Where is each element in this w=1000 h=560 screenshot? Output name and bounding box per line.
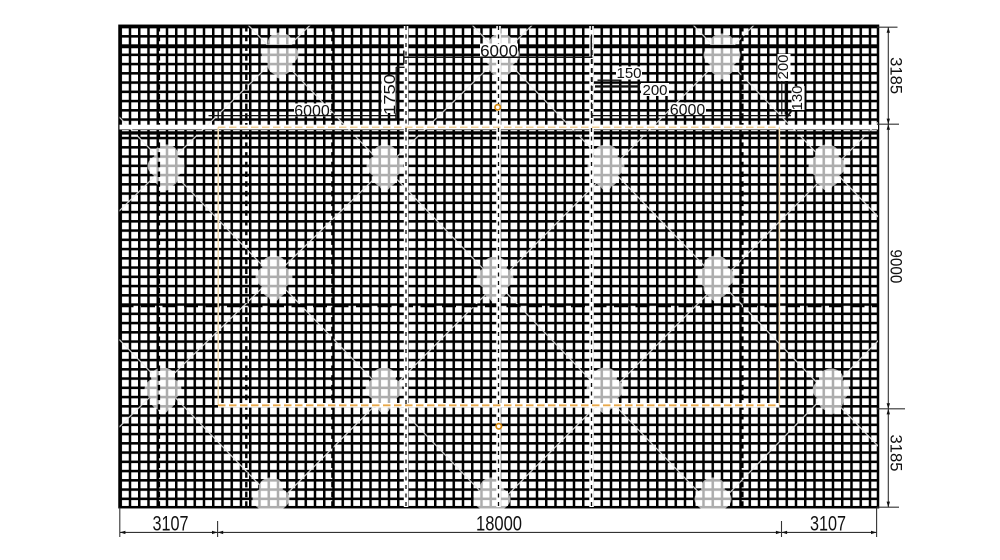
svg-text:130: 130 bbox=[789, 85, 806, 110]
svg-text:3107: 3107 bbox=[810, 513, 846, 536]
svg-text:3185: 3185 bbox=[886, 435, 905, 472]
svg-text:150: 150 bbox=[616, 65, 641, 82]
svg-text:6000: 6000 bbox=[480, 42, 518, 61]
svg-text:3185: 3185 bbox=[886, 57, 905, 94]
svg-text:200: 200 bbox=[775, 54, 792, 79]
svg-text:6000: 6000 bbox=[670, 102, 706, 119]
svg-text:200: 200 bbox=[642, 82, 667, 99]
svg-text:3107: 3107 bbox=[153, 513, 189, 536]
svg-text:1750: 1750 bbox=[382, 74, 399, 115]
svg-text:6000: 6000 bbox=[294, 103, 330, 120]
svg-text:18000: 18000 bbox=[476, 513, 522, 536]
svg-text:9000: 9000 bbox=[886, 249, 905, 283]
